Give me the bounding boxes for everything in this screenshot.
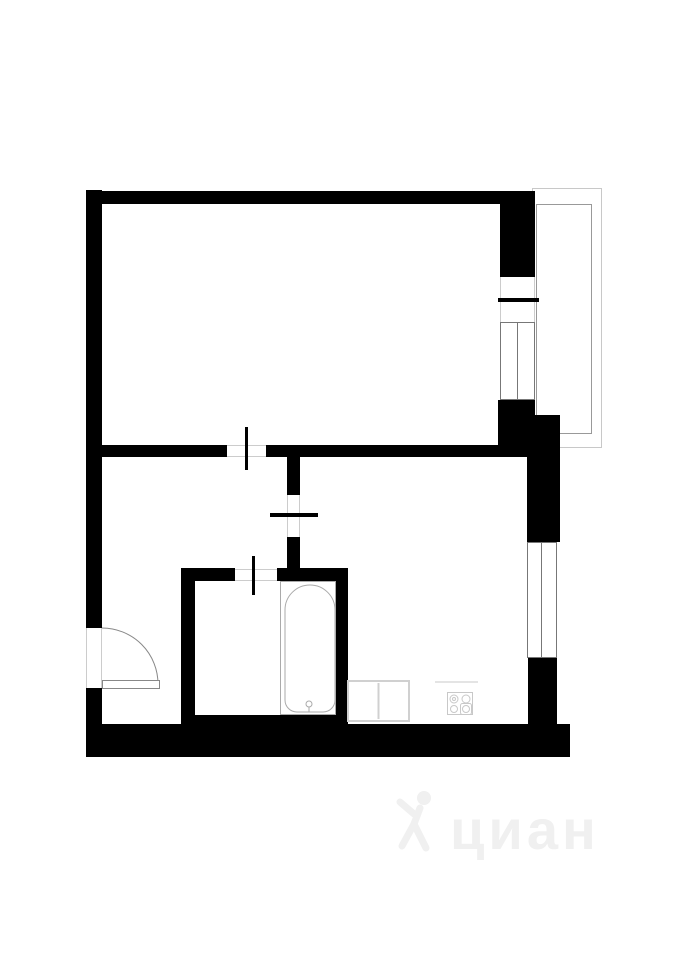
floor-plan-canvas: циан [0, 0, 679, 960]
divider-wall-right [266, 445, 527, 457]
bathroom-left-wall [181, 568, 195, 724]
bathroom-right-wall [336, 568, 348, 724]
watermark: циан [394, 788, 600, 858]
balcony-outline-inner [537, 205, 592, 434]
hall-kitchen-wall-upper [287, 445, 300, 495]
bathtub [285, 585, 335, 712]
bathroom-bottom-strip [181, 715, 348, 725]
living-right-wall-top [500, 191, 535, 277]
balcony-door-tick [498, 298, 539, 302]
kitchen-door-tick [270, 513, 318, 517]
bathroom-door-tick [252, 556, 255, 595]
kitchen-right-wall-bottom [528, 658, 557, 724]
left-wall-upper [86, 190, 102, 628]
kitchen-right-wall-top [527, 415, 560, 542]
bottom-wall [86, 724, 570, 757]
bathroom-door-opening [235, 569, 277, 581]
living-door-tick [245, 427, 248, 470]
watermark-text: циан [450, 802, 600, 858]
top-wall [88, 191, 535, 204]
entrance-door-leaf [103, 681, 160, 689]
entrance-opening [86, 628, 102, 688]
divider-wall-left [100, 445, 227, 457]
entrance-door-swing-arc [102, 628, 158, 684]
cian-logo-icon [394, 788, 440, 854]
